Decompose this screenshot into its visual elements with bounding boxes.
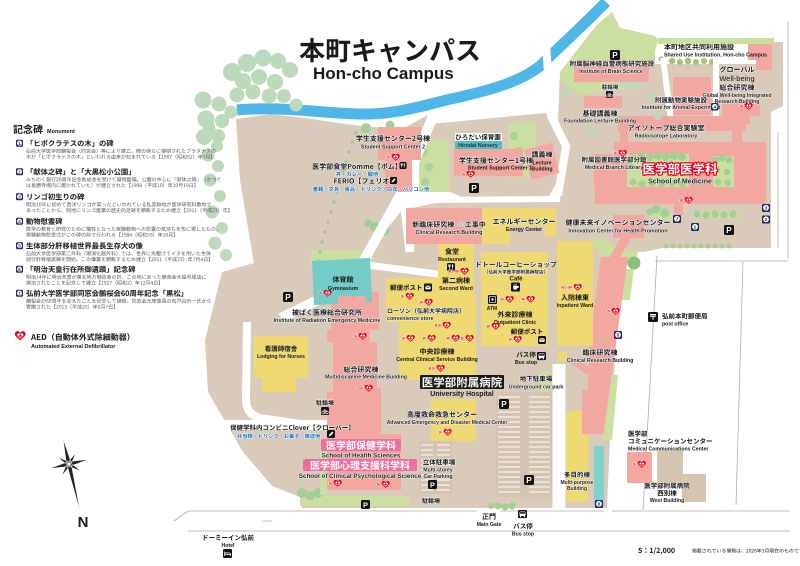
svg-text:convenience store: convenience store: [387, 316, 434, 322]
svg-text:Building: Building: [567, 486, 587, 492]
svg-text:Research Building: Research Building: [715, 99, 760, 105]
svg-text:School of Health Sciences: School of Health Sciences: [322, 453, 401, 460]
svg-text:Radioisotope Laboratory: Radioisotope Laboratory: [635, 134, 698, 140]
svg-text:1: 1: [694, 225, 697, 231]
svg-text:Foundation Lecture Building: Foundation Lecture Building: [564, 119, 636, 125]
svg-text:Car Parking: Car Parking: [423, 474, 452, 480]
svg-text:B1~8F: B1~8F: [449, 270, 461, 274]
svg-text:Innovation Center for Health P: Innovation Center for Health Promotion: [568, 229, 667, 235]
svg-text:Multi-storey: Multi-storey: [423, 468, 453, 474]
svg-text:4: 4: [713, 104, 716, 109]
svg-text:Underground car park: Underground car park: [509, 385, 564, 391]
svg-text:Student Support Center 2: Student Support Center 2: [361, 145, 425, 151]
svg-text:B1~8F: B1~8F: [562, 286, 574, 290]
svg-text:Bus stop: Bus stop: [515, 360, 537, 366]
svg-text:Clinical Research Building: Clinical Research Building: [567, 358, 634, 364]
svg-text:2: 2: [765, 217, 768, 223]
svg-text:Hotel: Hotel: [222, 543, 236, 549]
svg-text:N: N: [78, 514, 89, 531]
svg-text:Second Ward: Second Ward: [439, 286, 473, 292]
svg-text:ATM: ATM: [487, 306, 497, 312]
svg-text:5: 5: [617, 333, 620, 339]
svg-text:6: 6: [598, 502, 601, 508]
svg-text:1~6F: 1~6F: [355, 387, 364, 391]
svg-text:University Hospital: University Hospital: [430, 391, 493, 398]
svg-text:B1F: B1F: [435, 324, 443, 328]
svg-text:Multidiscipline Medicine Build: Multidiscipline Medicine Building: [325, 375, 407, 381]
svg-text:Advanced Emergency and Disaste: Advanced Emergency and Disaster Medical …: [387, 420, 508, 426]
svg-text:Gymnasium: Gymnasium: [328, 286, 359, 292]
svg-text:Energy Center: Energy Center: [506, 227, 542, 233]
svg-text:School of Medicine: School of Medicine: [648, 179, 712, 186]
svg-text:Shared Use Institution, Hon-ch: Shared Use Institution, Hon-cho Campus: [664, 53, 767, 59]
svg-text:Inpatient Ward: Inpatient Ward: [557, 303, 594, 309]
svg-text:Restaurant: Restaurant: [438, 257, 466, 263]
svg-text:B1F: B1F: [429, 367, 437, 371]
svg-text:Student Support Center 1: Student Support Center 1: [468, 166, 532, 172]
svg-text:Main Gate: Main Gate: [477, 522, 502, 528]
svg-text:Lodging for Nurses: Lodging for Nurses: [257, 354, 305, 360]
svg-text:Medical Branch Library: Medical Branch Library: [585, 165, 644, 171]
svg-text:Monument: Monument: [47, 129, 75, 135]
svg-text:Bus stop: Bus stop: [512, 532, 534, 538]
svg-text:7: 7: [676, 217, 679, 223]
svg-text:post office: post office: [662, 322, 688, 328]
svg-text:Automated External Defibrillat: Automated External Defibrillator: [31, 344, 116, 350]
svg-text:Hirodai Nursery: Hirodai Nursery: [458, 143, 498, 149]
svg-text:Medical Communications Center: Medical Communications Center: [628, 447, 708, 453]
svg-text:Building: Building: [531, 167, 552, 173]
svg-text:School of Clinical Psychologic: School of Clinical Psychological Science: [299, 473, 422, 480]
svg-text:West Building: West Building: [650, 498, 685, 504]
svg-text:Well-being: Well-being: [719, 74, 754, 83]
svg-text:3: 3: [765, 206, 768, 212]
svg-text:Institute of Radiation Emergen: Institute of Radiation Emergency Medicin…: [274, 318, 381, 324]
svg-text:Institute for Animal Experimen: Institute for Animal Experiment: [642, 105, 721, 111]
svg-text:Hon-cho Campus: Hon-cho Campus: [313, 64, 454, 83]
svg-text:Central Clinical Service Build: Central Clinical Service Building: [396, 357, 478, 363]
svg-text:Institute of Brain Science: Institute of Brain Science: [579, 69, 643, 75]
svg-text:Clinical Research Building: Clinical Research Building: [416, 230, 483, 236]
svg-text:Outpatient Clinic: Outpatient Clinic: [494, 320, 536, 326]
svg-text:Café: Café: [509, 277, 523, 283]
